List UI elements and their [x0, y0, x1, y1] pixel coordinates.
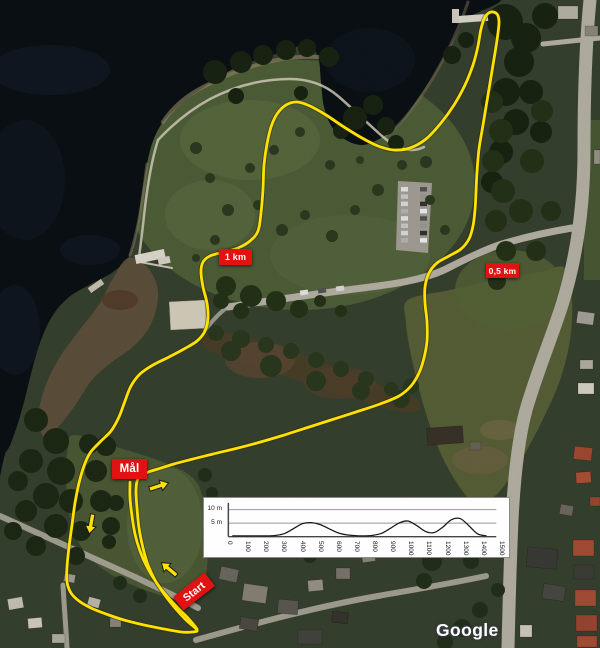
x-axis-tick-label: 300	[280, 541, 287, 552]
x-axis-tick-label: 500	[316, 541, 323, 552]
marker-label: 0,5 km	[489, 266, 517, 276]
x-axis-tick-label: 400	[298, 541, 305, 552]
x-axis-tick-label: 100	[244, 541, 251, 552]
distance-marker-1km: 1 km	[219, 249, 252, 265]
x-axis-tick-label: 1300	[461, 541, 468, 555]
x-axis-tick-label: 1200	[443, 541, 450, 555]
x-axis-tick-label: 1000	[407, 541, 414, 555]
y-axis-tick-label: 10 m	[204, 506, 222, 513]
x-axis-tick-label: 200	[262, 541, 269, 552]
x-axis-tick-label: 1500	[498, 541, 505, 555]
y-axis-tick-label: 5 m	[204, 520, 222, 527]
x-axis-tick-label: 1100	[425, 541, 432, 555]
marker-label: 1 km	[225, 252, 246, 262]
x-axis-tick-label: 800	[371, 541, 378, 552]
course-map[interactable]: 1 km 0,5 km Mål Start 10 m 5 m 010020030…	[0, 0, 600, 648]
x-axis-tick-label: 0	[226, 541, 233, 545]
x-axis-tick-label: 700	[352, 541, 359, 552]
elevation-curve	[232, 518, 486, 536]
finish-marker: Mål	[112, 459, 147, 479]
x-axis-tick-label: 600	[334, 541, 341, 552]
google-watermark[interactable]: Google	[436, 620, 499, 641]
distance-marker-0-5km: 0,5 km	[486, 263, 519, 278]
x-axis-tick-label: 1400	[479, 541, 486, 555]
x-axis-tick-label: 900	[389, 541, 396, 552]
elevation-profile-panel: 10 m 5 m 0100200300400500600700800900100…	[203, 497, 510, 558]
marker-label: Mål	[120, 463, 140, 475]
